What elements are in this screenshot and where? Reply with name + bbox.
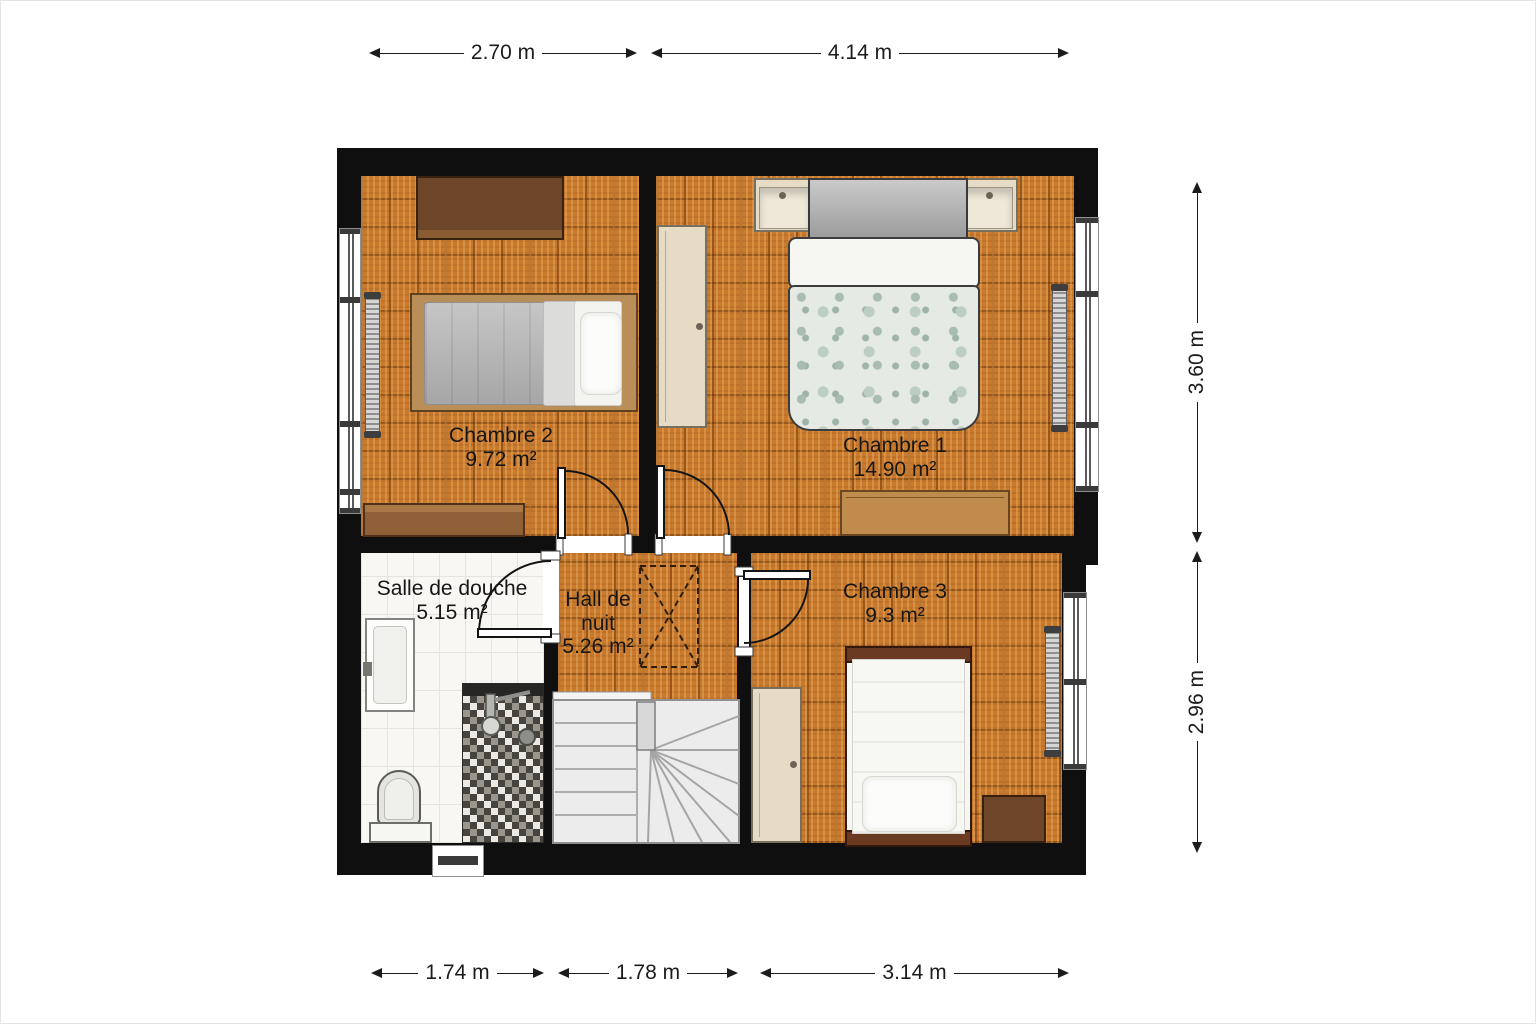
window-mullion: [1076, 422, 1098, 428]
arrowhead-left-icon: [760, 968, 771, 978]
dimension-label: 2.96 m: [1185, 663, 1209, 741]
wall-middle-right: [728, 536, 1098, 553]
arrowhead-up-icon: [1192, 182, 1202, 193]
desk-chambre2: [416, 176, 564, 240]
wall-middle-left: [337, 536, 561, 553]
dimension-line: [954, 973, 1058, 974]
dimension-line: [771, 973, 875, 974]
dimension-line: [542, 53, 626, 54]
wardrobe-chambre1: [657, 225, 707, 428]
pillow: [580, 312, 622, 395]
window-glass: [348, 229, 350, 513]
shower-wall: [463, 684, 543, 696]
shower-tile: [463, 696, 543, 842]
dimension-top-1: 2.70 m: [369, 42, 637, 64]
room-name: nuit: [562, 612, 633, 636]
window-mullion: [340, 489, 360, 495]
arrowhead-down-icon: [1192, 842, 1202, 853]
room-area: 5.26 m²: [562, 635, 633, 659]
wardrobe-handle: [790, 761, 797, 768]
dimension-label: 4.14 m: [821, 41, 899, 65]
shower: [462, 683, 544, 843]
bed-chambre1-head: [808, 178, 968, 240]
arrowhead-right-icon: [533, 968, 544, 978]
dimension-right-2: 2.96 m: [1186, 551, 1208, 853]
window-mullion: [340, 508, 360, 513]
dresser-line: [846, 497, 1004, 498]
arrowhead-left-icon: [558, 968, 569, 978]
radiator-chambre2: [365, 294, 380, 436]
window-mullion: [1076, 486, 1098, 491]
dimension-line: [380, 53, 464, 54]
window-glass: [1089, 218, 1091, 491]
window-mullion: [1064, 593, 1086, 598]
washbasin-unit: [365, 618, 415, 712]
room-area: 9.3 m²: [843, 604, 947, 628]
room-area: 5.15 m²: [377, 601, 528, 625]
dimension-line: [569, 973, 609, 974]
dimension-label: 3.60 m: [1185, 323, 1209, 401]
arrowhead-down-icon: [1192, 532, 1202, 543]
label-chambre2: Chambre 2 9.72 m²: [449, 424, 553, 471]
window-mullion: [1076, 291, 1098, 297]
dimension-label: 3.14 m: [875, 961, 953, 985]
window-mullion: [340, 229, 360, 234]
basin: [373, 626, 407, 704]
window-mullion: [340, 421, 360, 427]
room-name: Chambre 1: [843, 434, 947, 458]
dimension-line: [1197, 402, 1198, 532]
window-mullion: [1076, 218, 1098, 223]
wall-douche-hall: [544, 553, 558, 843]
label-hall-de-nuit: Hall de nuit 5.26 m²: [562, 588, 633, 659]
dimension-line: [1197, 562, 1198, 663]
arrowhead-right-icon: [1058, 48, 1069, 58]
label-chambre3: Chambre 3 9.3 m²: [843, 580, 947, 627]
wall-hall-chambre3: [737, 553, 751, 843]
dimension-bottom-3: 3.14 m: [760, 962, 1069, 984]
window-left: [339, 228, 361, 514]
arrowhead-left-icon: [371, 968, 382, 978]
window-mullion: [1064, 764, 1086, 769]
window-glass: [352, 229, 354, 513]
window-sash: [438, 856, 478, 865]
wardrobe-chambre3: [751, 687, 802, 843]
window-chambre1-right: [1075, 217, 1099, 492]
label-chambre1: Chambre 1 14.90 m²: [843, 434, 947, 481]
radiator-chambre3: [1045, 628, 1060, 755]
dimension-line: [1197, 741, 1198, 842]
dresser-chambre1: [840, 490, 1010, 536]
desk-edge: [418, 230, 562, 238]
dimension-right-1: 3.60 m: [1186, 182, 1208, 543]
window-chambre3-right: [1063, 592, 1087, 770]
nightstand-handle: [986, 192, 993, 199]
dimension-label: 1.74 m: [418, 961, 496, 985]
dimension-line: [382, 973, 418, 974]
toilet-bowl: [377, 770, 421, 826]
wardrobe-door-line: [665, 231, 666, 422]
arrowhead-left-icon: [651, 48, 662, 58]
radiator-chambre1: [1052, 286, 1067, 430]
bed-chambre2: [410, 293, 638, 412]
tap: [363, 662, 372, 676]
room-name: Chambre 2: [449, 424, 553, 448]
room-name: Salle de douche: [377, 577, 528, 601]
toilet-tank: [369, 822, 432, 843]
dimension-bottom-1: 1.74 m: [371, 962, 544, 984]
wardrobe-handle: [696, 323, 703, 330]
label-salle-de-douche: Salle de douche 5.15 m²: [377, 577, 528, 624]
window-glass: [1085, 218, 1087, 491]
room-area: 14.90 m²: [843, 458, 947, 482]
bed-chambre1-duvet: [788, 285, 980, 431]
bed-chambre3: [845, 646, 972, 847]
wall-top: [337, 148, 1098, 176]
dimension-line: [687, 973, 727, 974]
bed-chambre1-sheet: [788, 237, 980, 289]
dimension-line: [1197, 193, 1198, 323]
dresser-chambre2: [363, 503, 525, 537]
floor-plan-canvas: Chambre 2 9.72 m² Chambre 1 14.90 m² Sal…: [0, 0, 1536, 1024]
dimension-line: [662, 53, 821, 54]
arrowhead-right-icon: [1058, 968, 1069, 978]
wardrobe-door-line: [759, 693, 760, 837]
wall-chambre2-chambre1: [639, 176, 656, 553]
arrowhead-left-icon: [369, 48, 380, 58]
dimension-line: [899, 53, 1058, 54]
room-name: Hall de: [562, 588, 633, 612]
nightstand-handle: [779, 192, 786, 199]
window-bottom: [432, 845, 484, 877]
dimension-line: [497, 973, 533, 974]
arrowhead-right-icon: [626, 48, 637, 58]
arrowhead-up-icon: [1192, 551, 1202, 562]
window-mullion: [1064, 679, 1086, 685]
arrowhead-right-icon: [727, 968, 738, 978]
dimension-bottom-2: 1.78 m: [558, 962, 738, 984]
dimension-label: 1.78 m: [609, 961, 687, 985]
sheet-fold: [543, 301, 577, 406]
pillow: [862, 776, 957, 832]
window-mullion: [340, 297, 360, 303]
room-name: Chambre 3: [843, 580, 947, 604]
toilet-seat: [384, 778, 414, 820]
room-area: 9.72 m²: [449, 448, 553, 472]
table-chambre3: [982, 795, 1046, 843]
dimension-label: 2.70 m: [464, 41, 542, 65]
dresser-edge: [365, 505, 523, 512]
mattress: [424, 302, 546, 405]
dimension-top-2: 4.14 m: [651, 42, 1069, 64]
